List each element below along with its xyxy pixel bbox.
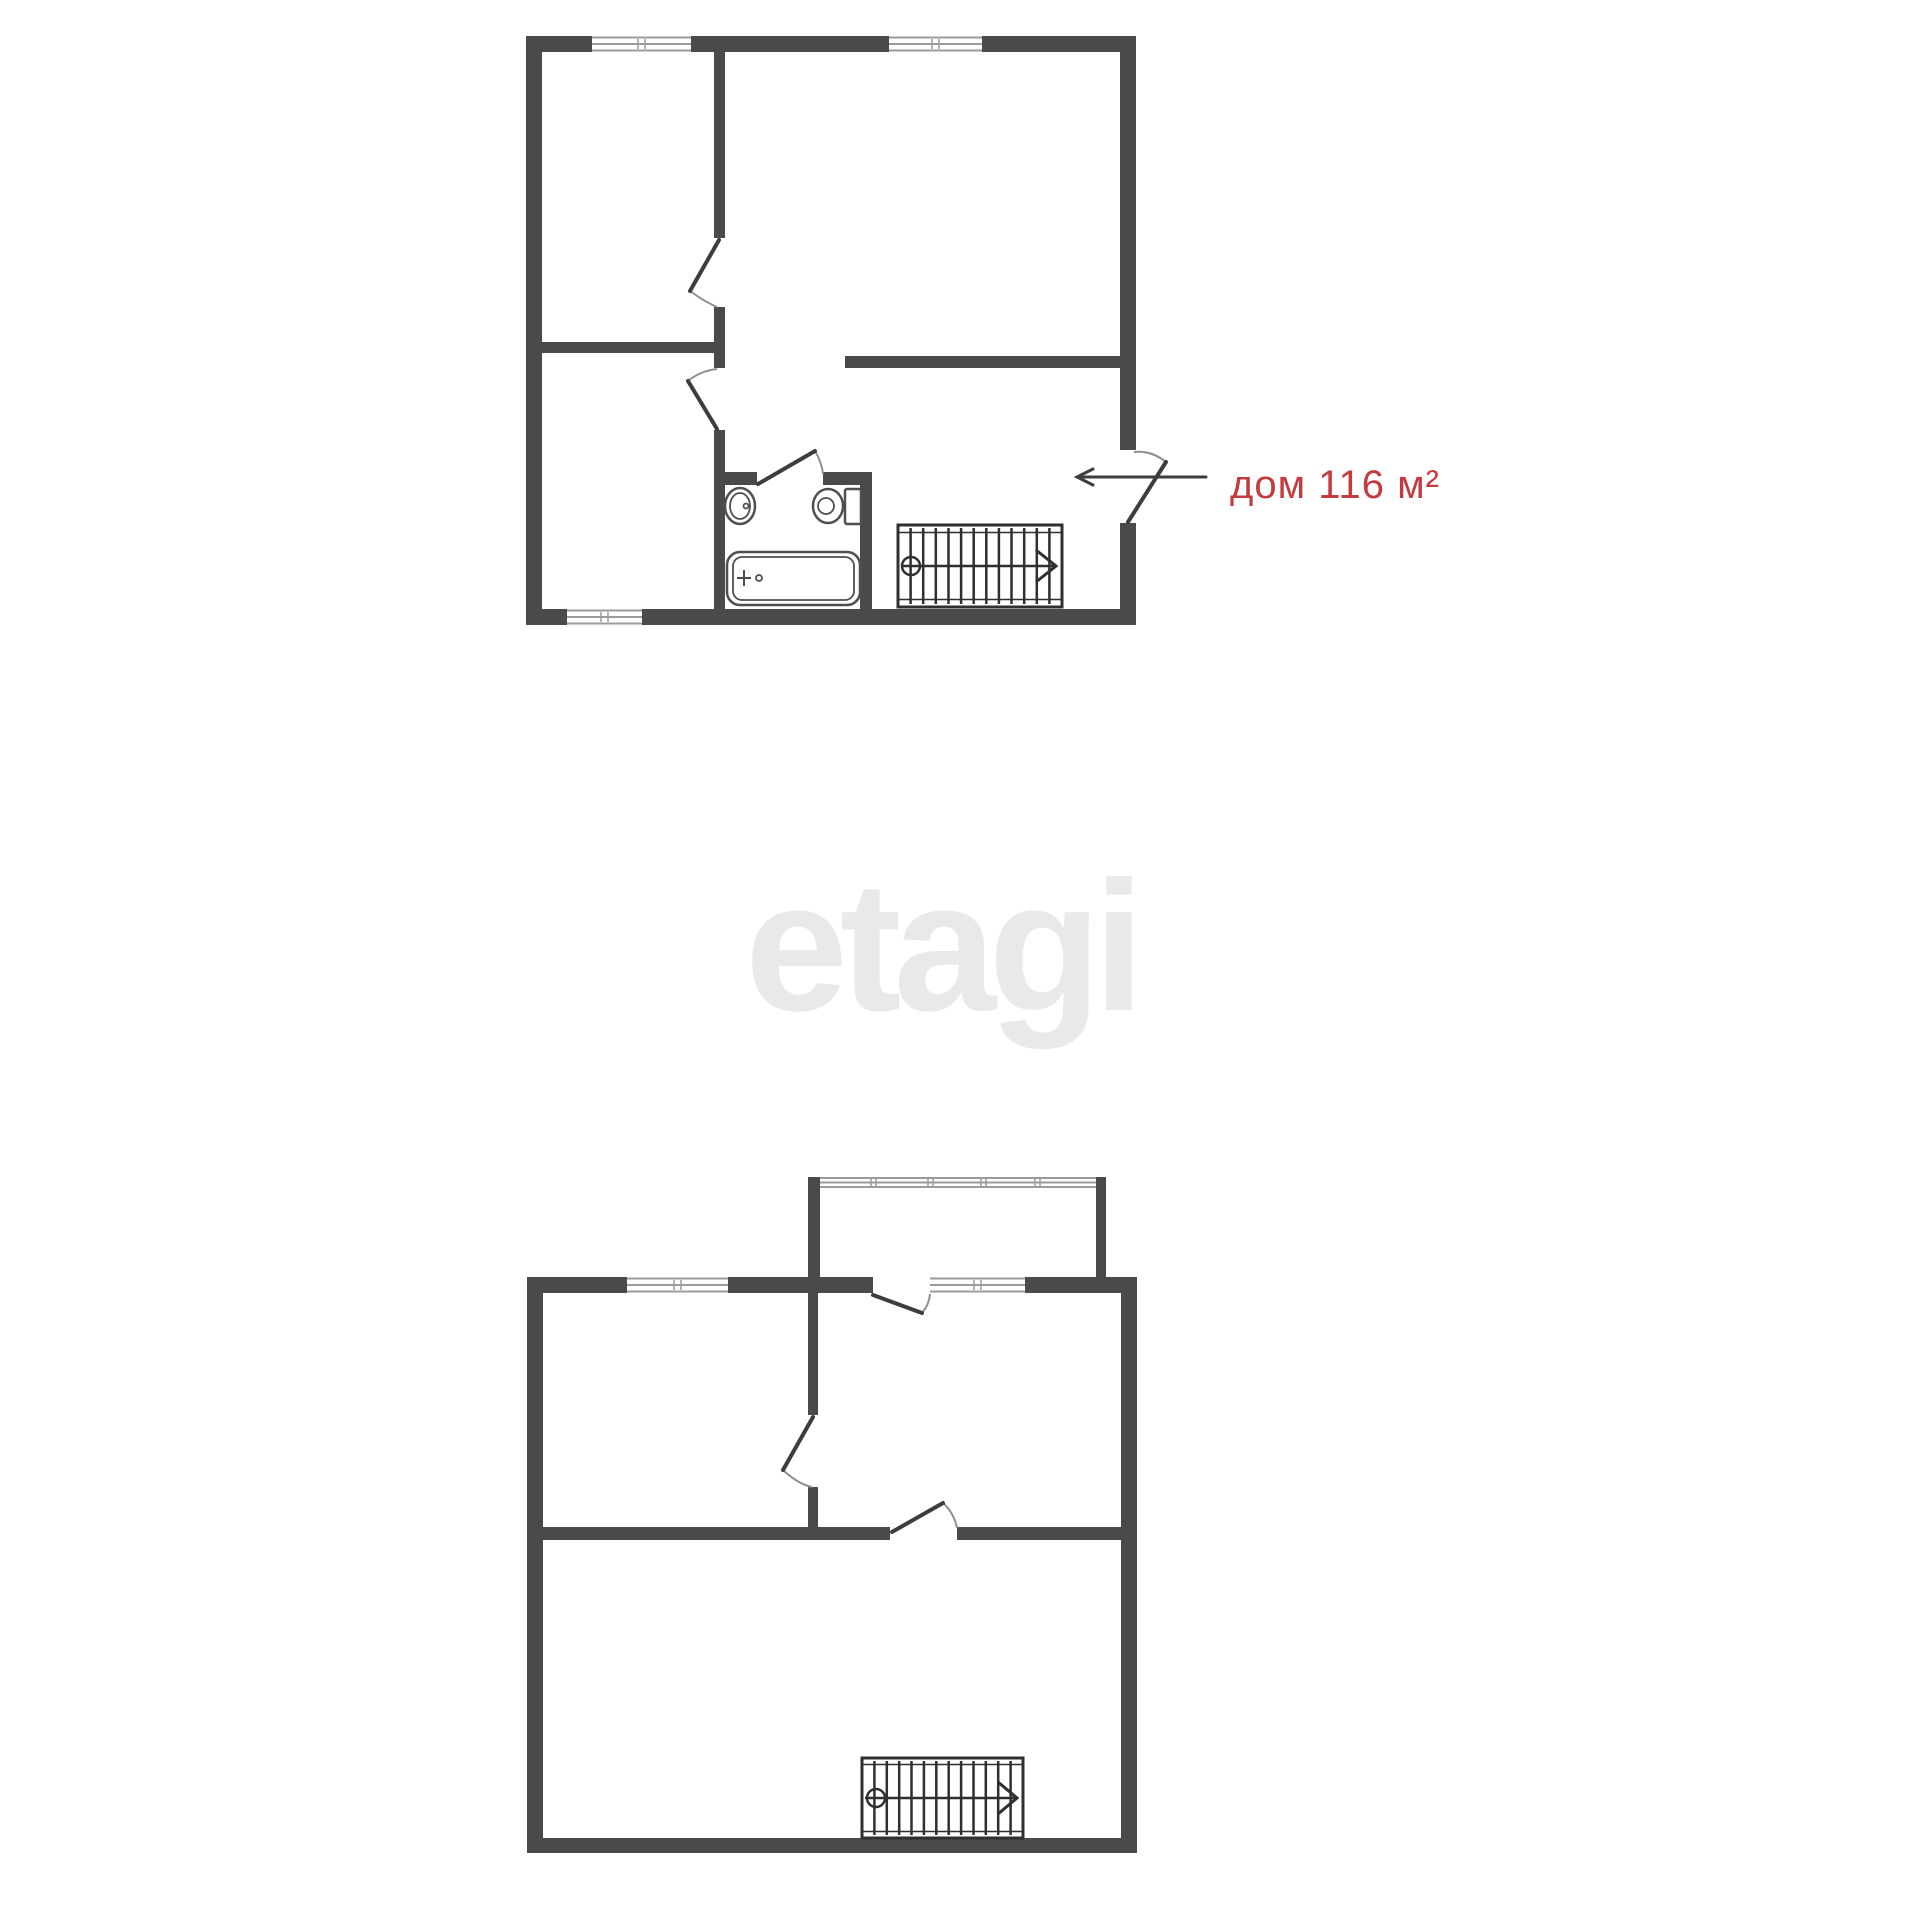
door-arc [815, 451, 823, 474]
door-leaf [688, 381, 717, 429]
door-arc [690, 291, 717, 307]
lower-staircase [862, 1758, 1023, 1838]
door-arc [783, 1470, 812, 1487]
wall-segment [642, 609, 1136, 625]
door-leaf [783, 1417, 813, 1470]
wall-segment [1025, 1277, 1137, 1293]
sink [725, 488, 755, 524]
door-arc [1134, 452, 1166, 462]
wall-segment [526, 609, 567, 625]
wall-segment [691, 36, 889, 52]
wall-segment [527, 1277, 543, 1853]
wall-segment [957, 1527, 1121, 1540]
lower-doors [783, 1295, 943, 1532]
wall-segment [527, 1838, 1137, 1853]
wall-segment [526, 36, 542, 625]
door-leaf [758, 451, 815, 484]
bathroom-fixtures [725, 488, 861, 605]
door-arc [688, 369, 717, 381]
door-leaf [873, 1295, 922, 1313]
area-label: дом 116 м² [1230, 463, 1440, 507]
wall-segment [542, 342, 714, 353]
door-arc [922, 1294, 930, 1313]
wall-segment [845, 356, 1120, 368]
entrance-arrow [1077, 469, 1206, 485]
upper-doors [688, 240, 1166, 522]
wall-segment [728, 1277, 873, 1293]
window [930, 1279, 1025, 1292]
door-leaf [690, 240, 719, 291]
window [592, 38, 691, 51]
bathtub [727, 552, 860, 605]
wall-segment [714, 472, 757, 485]
window [567, 611, 642, 624]
upper-door-arcs [688, 291, 1166, 474]
wall-segment [808, 1177, 820, 1277]
wall-segment [1096, 1177, 1106, 1277]
wall-segment [823, 472, 872, 485]
wall-segment [1121, 1277, 1137, 1853]
lower-floor-plan [527, 1177, 1137, 1853]
floor-plan-canvas: etagi [0, 0, 1920, 1920]
window [627, 1279, 728, 1292]
wall-segment [714, 430, 725, 609]
wall-segment [543, 1527, 890, 1540]
door-leaf [892, 1503, 943, 1532]
upper-staircase [898, 525, 1062, 607]
wall-segment [714, 307, 725, 368]
wall-segment [982, 36, 1136, 52]
door-arc [943, 1503, 957, 1528]
floor-plan-page: etagi [0, 0, 1920, 1920]
wall-segment [714, 52, 725, 238]
upper-floor-plan [526, 36, 1206, 625]
veranda-window [820, 1178, 1096, 1187]
toilet [813, 489, 861, 524]
window [889, 38, 982, 51]
lower-walls [527, 1177, 1137, 1853]
wall-segment [808, 1293, 818, 1415]
wall-segment [1120, 36, 1136, 450]
door-leaf [1128, 462, 1166, 522]
watermark-logo-text: etagi [745, 844, 1137, 1050]
